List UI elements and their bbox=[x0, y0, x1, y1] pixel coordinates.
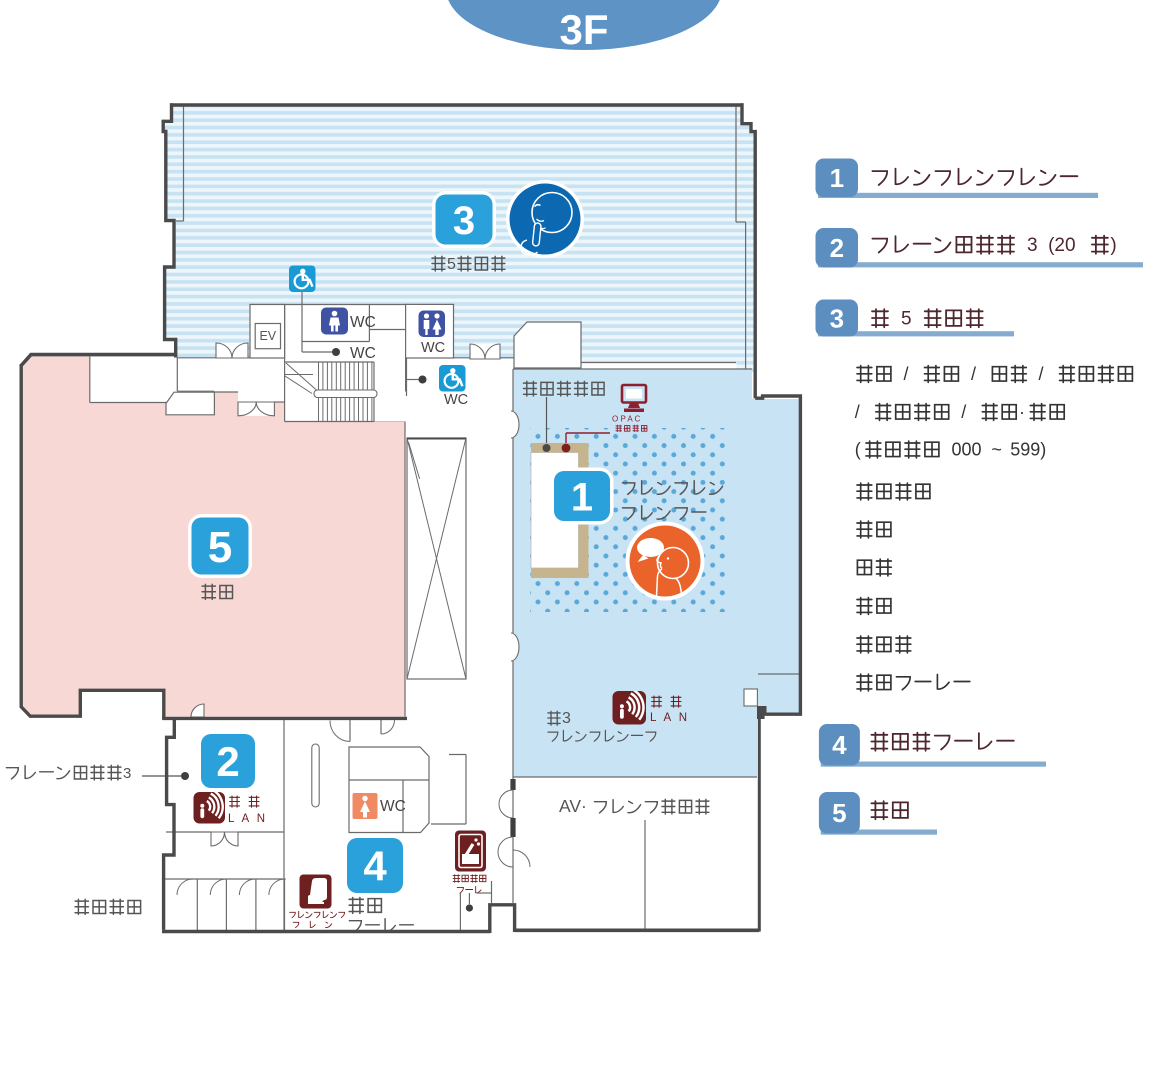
svg-text:5: 5 bbox=[208, 523, 232, 572]
svg-text:O P A C: O P A C bbox=[612, 415, 641, 424]
svg-text:(20: (20 bbox=[1048, 235, 1075, 256]
svg-text:WC: WC bbox=[350, 314, 376, 331]
svg-text:WC: WC bbox=[421, 340, 445, 356]
svg-text:/: / bbox=[961, 402, 966, 422]
svg-text:3F: 3F bbox=[559, 6, 608, 53]
svg-text:WC: WC bbox=[380, 798, 406, 815]
svg-text:(: ( bbox=[855, 440, 861, 460]
svg-text:WC: WC bbox=[350, 345, 376, 362]
svg-text:/: / bbox=[904, 364, 909, 384]
svg-text:5: 5 bbox=[447, 256, 456, 273]
svg-text:~: ~ bbox=[991, 440, 1002, 460]
svg-text:3: 3 bbox=[830, 304, 844, 334]
svg-text:WC: WC bbox=[444, 392, 468, 408]
svg-text:3: 3 bbox=[1027, 235, 1038, 256]
svg-text:AV·: AV· bbox=[559, 796, 587, 816]
svg-text:5: 5 bbox=[901, 309, 912, 330]
svg-text:L A N: L A N bbox=[228, 813, 268, 825]
svg-text:1: 1 bbox=[571, 475, 593, 519]
svg-text:599): 599) bbox=[1010, 440, 1046, 460]
svg-text:2: 2 bbox=[830, 233, 844, 263]
svg-text:5: 5 bbox=[832, 798, 846, 828]
svg-text:L A N: L A N bbox=[650, 712, 690, 724]
svg-text:/: / bbox=[971, 364, 976, 384]
svg-text:2: 2 bbox=[216, 738, 239, 785]
svg-text:1: 1 bbox=[830, 163, 844, 193]
svg-text:4: 4 bbox=[832, 730, 847, 760]
svg-text:3: 3 bbox=[123, 765, 131, 782]
svg-text:3: 3 bbox=[562, 710, 571, 727]
svg-text:/: / bbox=[855, 402, 860, 422]
svg-text:/: / bbox=[1039, 364, 1044, 384]
svg-text:3: 3 bbox=[453, 199, 475, 243]
svg-text:): ) bbox=[1110, 235, 1116, 256]
svg-text:·: · bbox=[1019, 402, 1025, 422]
svg-text:4: 4 bbox=[363, 843, 387, 890]
svg-text:000: 000 bbox=[952, 440, 982, 460]
svg-text:EV: EV bbox=[259, 329, 276, 343]
